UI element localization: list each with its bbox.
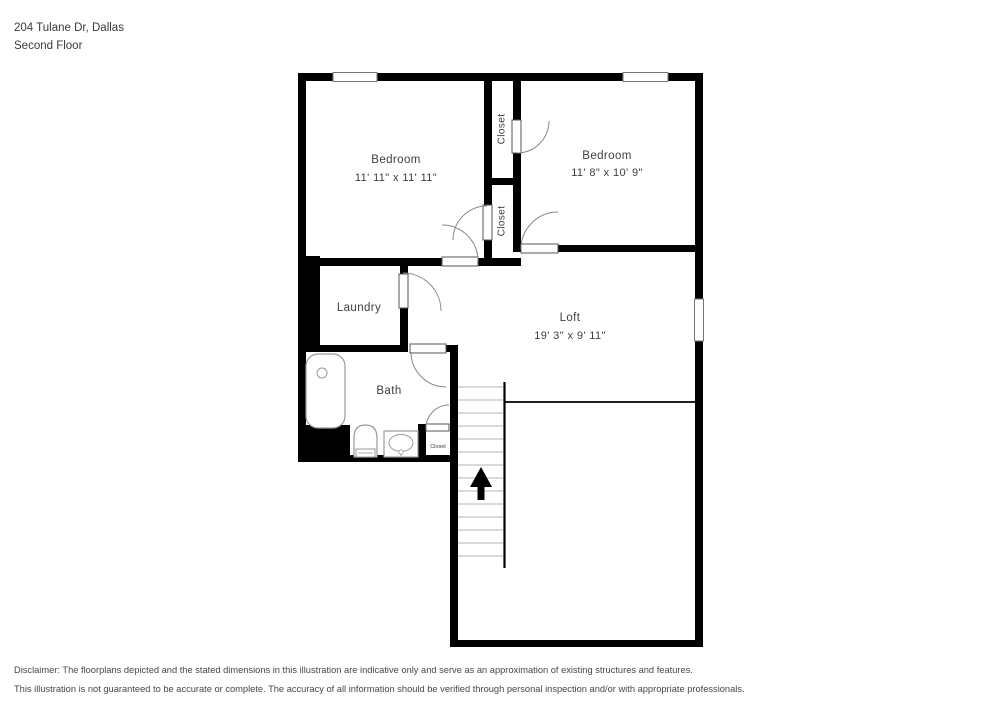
bedroom-left-label: Bedroom xyxy=(371,154,420,166)
toilet-icon xyxy=(354,425,377,457)
door-bedroom-left xyxy=(442,225,478,266)
door-closet-top xyxy=(512,120,549,153)
window-bedroom-right xyxy=(623,73,668,82)
disclaimer-line-2: This illustration is not guaranteed to b… xyxy=(14,680,745,699)
bedroom-right-dims: 11' 8" x 10' 9" xyxy=(571,167,643,179)
closet-bath-label: Closet xyxy=(430,444,446,450)
doors xyxy=(399,120,558,431)
door-laundry xyxy=(399,273,441,311)
window-bedroom-left xyxy=(333,73,377,82)
door-bedroom-right xyxy=(521,212,558,253)
door-bath xyxy=(410,344,446,387)
walls xyxy=(298,73,703,647)
disclaimer: Disclaimer: The floorplans depicted and … xyxy=(14,661,745,698)
bedroom-left-dims: 11' 11" x 11' 11" xyxy=(355,172,437,184)
loft-dims: 19' 3" x 9' 11" xyxy=(534,330,606,342)
bath-label: Bath xyxy=(376,385,401,397)
staircase xyxy=(458,382,695,568)
closet-bottom-label: Closet xyxy=(497,206,508,237)
disclaimer-line-1: Disclaimer: The floorplans depicted and … xyxy=(14,661,745,680)
closet-top-label: Closet xyxy=(497,114,508,145)
sink-icon xyxy=(384,431,418,457)
bathtub-icon xyxy=(306,354,345,428)
door-closet-bath xyxy=(426,405,449,431)
floorplan-page: 204 Tulane Dr, Dallas Second Floor xyxy=(0,0,1000,707)
bedroom-right-label: Bedroom xyxy=(582,150,631,162)
loft-label: Loft xyxy=(560,312,581,324)
floorplan-drawing: Bedroom 11' 11" x 11' 11" Bedroom 11' 8"… xyxy=(0,0,1000,707)
laundry-label: Laundry xyxy=(337,302,381,314)
stairs-up-arrow-icon xyxy=(470,467,492,500)
window-loft xyxy=(695,299,704,341)
door-closet-bottom xyxy=(453,205,492,240)
